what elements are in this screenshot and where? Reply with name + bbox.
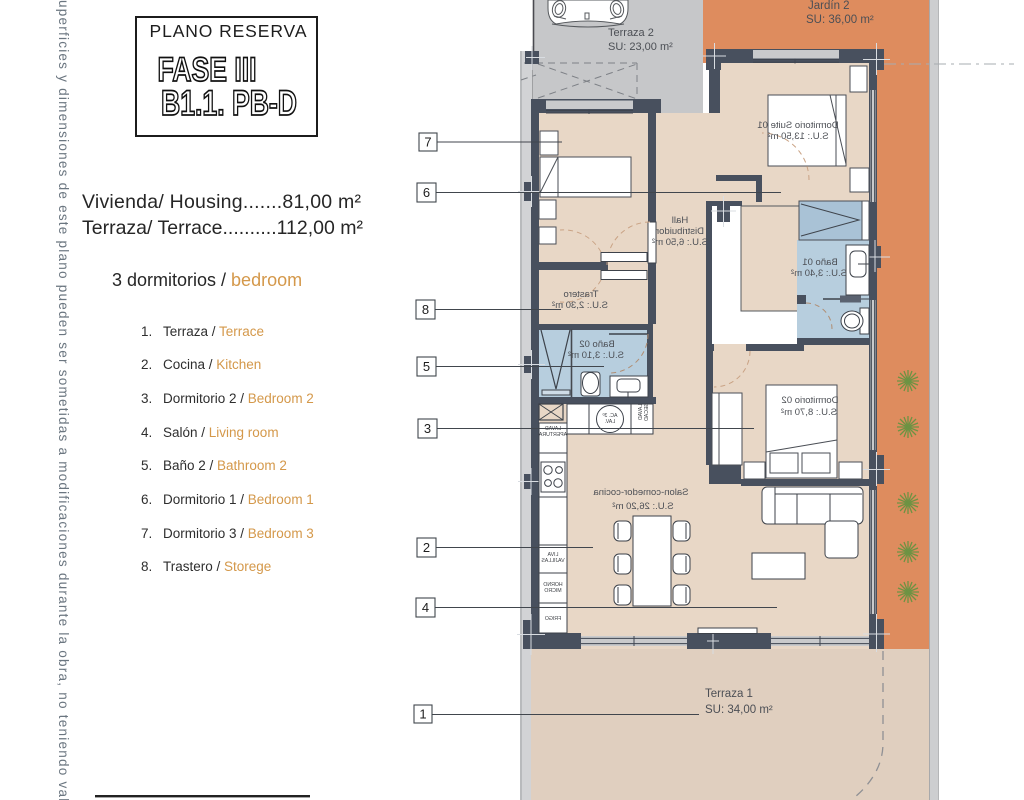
- svg-text:Hall: Hall: [672, 215, 688, 226]
- svg-text:Trastero / Storege: Trastero / Storege: [163, 559, 271, 574]
- svg-text:Jardín 2: Jardín 2: [808, 0, 850, 12]
- svg-text:8.: 8.: [141, 559, 152, 574]
- svg-text:Distribuidor: Distribuidor: [656, 226, 704, 237]
- svg-text:8: 8: [422, 302, 429, 317]
- svg-text:Vivienda/ Housing.......81,00: Vivienda/ Housing.......81,00 m²: [82, 191, 362, 213]
- svg-text:APERTURA: APERTURA: [538, 432, 567, 438]
- svg-text:Dormitorio Suite 01: Dormitorio Suite 01: [757, 120, 838, 131]
- svg-text:MICRO: MICRO: [544, 588, 561, 594]
- svg-text:SU: 23,00 m²: SU: 23,00 m²: [608, 41, 673, 53]
- svg-text:SU: 34,00 m²: SU: 34,00 m²: [705, 704, 773, 716]
- svg-text:Cocina / Kitchen: Cocina / Kitchen: [163, 357, 261, 372]
- svg-text:3: 3: [424, 421, 431, 436]
- svg-text:Dormitorio 02: Dormitorio 02: [781, 395, 838, 406]
- svg-text:Baño 2 / Bathroom 2: Baño 2 / Bathroom 2: [163, 458, 287, 473]
- svg-text:Dormitorio 1 / Bedroom 1: Dormitorio 1 / Bedroom 1: [163, 492, 314, 507]
- svg-text:PLANO RESERVA: PLANO RESERVA: [150, 21, 307, 41]
- svg-text:Terraza/ Terrace..........112,: Terraza/ Terrace..........112,00 m²: [82, 217, 364, 239]
- svg-text:Terraza 1: Terraza 1: [705, 688, 753, 700]
- svg-text:6.: 6.: [141, 492, 152, 507]
- svg-text:4.: 4.: [141, 425, 152, 440]
- svg-text:1: 1: [419, 707, 426, 722]
- svg-text:Trastero: Trastero: [563, 289, 598, 300]
- svg-text:Terraza 2: Terraza 2: [608, 27, 654, 39]
- svg-text:LAV.: LAV.: [605, 419, 615, 425]
- svg-text:SU: 36,00 m²: SU: 36,00 m²: [806, 14, 874, 26]
- svg-text:Salón / Living room: Salón / Living room: [163, 425, 279, 440]
- svg-text:superficies y dimensiones de e: superficies y dimensiones de este plano …: [56, 0, 71, 800]
- svg-text:7: 7: [424, 135, 431, 150]
- svg-text:2: 2: [423, 540, 430, 555]
- svg-text:4: 4: [422, 600, 429, 615]
- svg-text:S.U.: 3,10 m²: S.U.: 3,10 m²: [568, 350, 624, 361]
- svg-text:7.: 7.: [141, 526, 152, 541]
- svg-text:3 dormitorios / bedroom: 3 dormitorios / bedroom: [112, 270, 302, 290]
- svg-text:1.: 1.: [141, 324, 152, 339]
- svg-text:Dormitorio 3 / Bedroom 3: Dormitorio 3 / Bedroom 3: [163, 526, 314, 541]
- svg-text:S.U.: 6,50 m²: S.U.: 6,50 m²: [652, 237, 708, 248]
- svg-text:Salon-comedor-cocina: Salon-comedor-cocina: [593, 487, 689, 498]
- svg-text:Baño 01: Baño 01: [802, 257, 837, 268]
- svg-text:5.: 5.: [141, 458, 152, 473]
- svg-text:5: 5: [423, 359, 430, 374]
- svg-text:Dormitorio 2 / Bedroom 2: Dormitorio 2 / Bedroom 2: [163, 391, 314, 406]
- svg-text:S.U.: 26,20 m²: S.U.: 26,20 m²: [612, 501, 673, 512]
- svg-text:3.: 3.: [141, 391, 152, 406]
- svg-text:6: 6: [423, 185, 430, 200]
- svg-text:SECAD: SECAD: [644, 403, 650, 421]
- svg-text:VAJILLAS: VAJILLAS: [541, 558, 565, 564]
- svg-text:Baño 02: Baño 02: [579, 339, 614, 350]
- svg-text:S.U.: 8,70 m²: S.U.: 8,70 m²: [781, 407, 837, 418]
- svg-text:FRIGO: FRIGO: [545, 616, 561, 622]
- svg-text:B1.1. PB-D: B1.1. PB-D: [161, 84, 297, 123]
- svg-text:2.: 2.: [141, 357, 152, 372]
- svg-text:S.U.: 13,50 m²: S.U.: 13,50 m²: [767, 131, 828, 142]
- svg-text:Terraza / Terrace: Terraza / Terrace: [163, 324, 264, 339]
- svg-text:S.U.: 3,40 m²: S.U.: 3,40 m²: [791, 268, 847, 279]
